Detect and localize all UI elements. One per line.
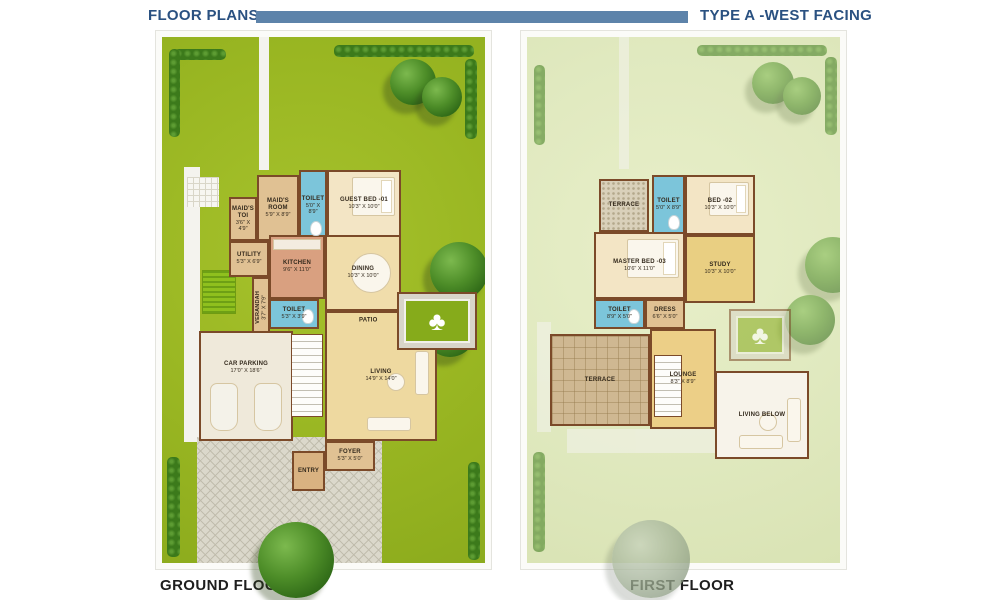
room-dims: 5'9" X 8'9"	[266, 212, 291, 218]
room-label: DRESS6'6" X 5'0"	[653, 307, 678, 320]
patio-paving: ♣	[736, 316, 784, 354]
floor-plan-sheet: FLOOR PLANS TYPE A -WEST FACING MAID'S T…	[0, 0, 1000, 600]
car-icon	[254, 383, 282, 431]
room-name: TOILET	[302, 196, 324, 203]
room-name: ENTRY	[298, 468, 319, 475]
coffee-table-icon	[387, 373, 405, 391]
room-name: STUDY	[709, 262, 730, 269]
room-dress: DRESS6'6" X 5'0"	[645, 299, 685, 329]
room-dims: 5'3" X 6'9"	[237, 259, 262, 265]
room-study: STUDY10'3" X 10'0"	[685, 235, 755, 303]
ground-floor-panel: MAID'S TOI3'6" X 4'9"MAID'S ROOM5'9" X 8…	[155, 30, 492, 570]
room-kitchen: KITCHEN9'6" X 11'0"	[269, 235, 325, 299]
room-label: FOYER5'3" X 5'0"	[338, 449, 363, 462]
room-name: KITCHEN	[283, 260, 311, 267]
coffee-table-icon	[759, 413, 777, 431]
first-lawn: TERRACETOILET5'0" X 8'9"BED -0210'3" X 1…	[527, 37, 840, 563]
sofa-icon	[367, 417, 411, 431]
room-dining: DINING10'3" X 10'0"	[325, 235, 401, 311]
first-floor-plan: TERRACETOILET5'0" X 8'9"BED -0210'3" X 1…	[527, 37, 840, 563]
room-name: DRESS	[654, 307, 676, 314]
room-dims: 9'6" X 11'0"	[283, 267, 311, 273]
room-living-below: LIVING BELOW	[715, 371, 809, 459]
room-name: CAR PARKING	[224, 361, 268, 368]
tree-icon	[258, 522, 334, 598]
room-name: TERRACE	[585, 377, 615, 384]
page-title-left: FLOOR PLANS	[148, 7, 259, 24]
room-staircase	[291, 334, 323, 417]
room-label: TERRACE	[609, 202, 639, 209]
kitchen-counter-icon	[273, 239, 321, 250]
room-name: FOYER	[339, 449, 361, 456]
room-maids-room: MAID'S ROOM5'9" X 8'9"	[257, 175, 299, 241]
room-toilet-top: TOILET5'0" X 8'9"	[299, 170, 327, 241]
room-car-parking: CAR PARKING17'0" X 18'6"	[199, 331, 293, 441]
patio-tree-icon: ♣	[751, 322, 768, 348]
room-label: MAID'S ROOM5'9" X 8'9"	[259, 198, 297, 218]
room-guest-bed-01: GUEST BED -0110'3" X 10'0"	[327, 170, 401, 237]
room-utility: UTILITY5'3" X 6'9"	[229, 241, 269, 277]
page-title-right: TYPE A -WEST FACING	[700, 7, 842, 24]
room-dims: 5'3" X 5'0"	[338, 456, 363, 462]
room-maids-toi: MAID'S TOI3'6" X 4'9"	[229, 197, 257, 241]
room-label: UTILITY5'3" X 6'9"	[237, 252, 262, 265]
sofa-icon	[739, 435, 783, 449]
room-master-bed-03: MASTER BED -0310'6" X 11'0"	[594, 232, 685, 299]
patio-paving: ♣	[404, 299, 470, 343]
room-foyer: FOYER5'3" X 5'0"	[325, 441, 375, 471]
toilet-fixture-icon	[302, 309, 314, 324]
room-entry: ENTRY	[292, 451, 325, 491]
room-name: UTILITY	[237, 252, 261, 259]
room-label: STUDY10'3" X 10'0"	[704, 262, 735, 275]
room-label: TOILET5'0" X 8'9"	[301, 196, 325, 216]
room-name: TERRACE	[609, 202, 639, 209]
room-dims: 3'7" X 7'9"	[261, 295, 267, 320]
room-dims: 6'6" X 5'0"	[653, 314, 678, 320]
room-dims: 5'0" X 8'9"	[301, 203, 325, 216]
room-patio-below: ♣	[729, 309, 791, 361]
patio-tree-icon: ♣	[428, 308, 445, 334]
room-toilet-f1: TOILET5'0" X 8'9"	[652, 175, 685, 235]
bed-icon	[627, 239, 679, 278]
room-toilet-f2: TOILET8'9" X 5'0"	[594, 299, 645, 329]
room-name: VERANDAH	[255, 291, 261, 324]
room-name: TOILET	[657, 198, 679, 205]
room-dims: 3'6" X 4'9"	[231, 220, 255, 233]
room-dims: 10'3" X 10'0"	[704, 269, 735, 275]
room-terrace-top: TERRACE	[599, 179, 649, 232]
bed-icon	[709, 182, 749, 216]
room-dims: 5'0" X 8'9"	[656, 205, 681, 211]
first-floor-panel: TERRACETOILET5'0" X 8'9"BED -0210'3" X 1…	[520, 30, 847, 570]
room-terrace-big: TERRACE	[550, 334, 650, 426]
bed-icon	[352, 177, 395, 216]
room-label: ENTRY	[298, 468, 319, 475]
toilet-fixture-icon	[628, 309, 640, 324]
room-toilet-mid: TOILET5'3" X 3'9"	[269, 299, 319, 329]
header-divider-bar	[256, 11, 688, 23]
ground-floor-plan: MAID'S TOI3'6" X 4'9"MAID'S ROOM5'9" X 8…	[162, 37, 485, 563]
tree-icon	[612, 520, 690, 598]
toilet-fixture-icon	[310, 221, 322, 236]
sofa-icon	[787, 398, 801, 442]
room-bed-02: BED -0210'3" X 10'0"	[685, 175, 755, 235]
ground-lawn: MAID'S TOI3'6" X 4'9"MAID'S ROOM5'9" X 8…	[162, 37, 485, 563]
toilet-fixture-icon	[668, 215, 680, 230]
room-label: KITCHEN9'6" X 11'0"	[283, 260, 311, 273]
room-patio: ♣PATIO	[397, 292, 477, 350]
room-label: TERRACE	[585, 377, 615, 384]
room-stair-f	[654, 355, 682, 417]
room-label: VERANDAH3'7" X 7'9"	[255, 291, 268, 324]
sofa-icon	[415, 351, 429, 395]
room-dims: 17'0" X 18'6"	[230, 368, 261, 374]
room-label: TOILET5'0" X 8'9"	[656, 198, 681, 211]
room-label: MAID'S TOI3'6" X 4'9"	[231, 206, 255, 232]
room-label: CAR PARKING17'0" X 18'6"	[201, 361, 291, 374]
room-verandah: VERANDAH3'7" X 7'9"	[252, 277, 270, 337]
room-name: MAID'S ROOM	[259, 198, 297, 212]
dining-table-icon	[351, 253, 391, 293]
room-name: MAID'S TOI	[231, 206, 255, 220]
car-icon	[210, 383, 238, 431]
